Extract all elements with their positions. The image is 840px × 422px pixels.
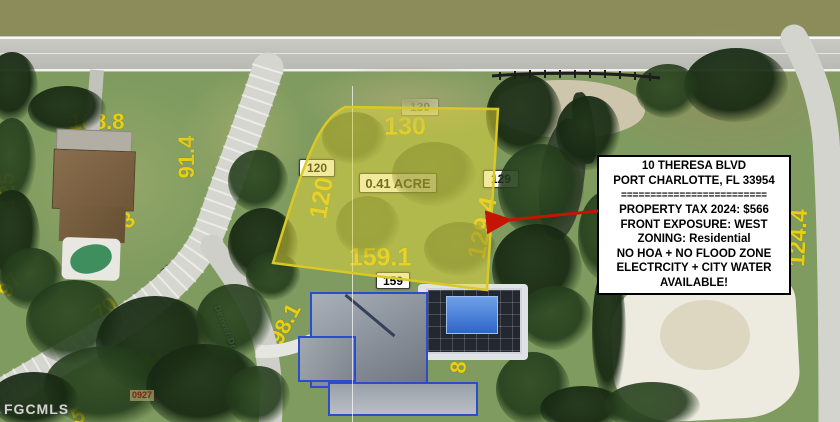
info-address-line1: 10 THERESA BLVD — [599, 159, 789, 174]
info-zoning: ZONING: Residential — [599, 232, 789, 247]
info-exposure: FRONT EXPOSURE: WEST — [599, 218, 789, 233]
info-utilities: ELECTRCITY + CITY WATER — [599, 261, 789, 276]
plat-code: 0927 — [130, 390, 154, 401]
aerial-listing-image: Hillsborough Blvd Theresa Blvd Denver Dr… — [0, 0, 840, 422]
mls-watermark: FGCMLS — [4, 401, 69, 417]
info-box: 10 THERESA BLVD PORT CHARLOTTE, FL 33954… — [597, 155, 791, 295]
info-divider: ========================= — [599, 189, 789, 204]
info-address-line2: PORT CHARLOTTE, FL 33954 — [599, 174, 789, 189]
info-hoa-flood: NO HOA + NO FLOOD ZONE — [599, 247, 789, 262]
info-available: AVAILABLE! — [599, 276, 789, 291]
info-tax: PROPERTY TAX 2024: $566 — [599, 203, 789, 218]
subject-lot-highlight — [273, 107, 498, 290]
